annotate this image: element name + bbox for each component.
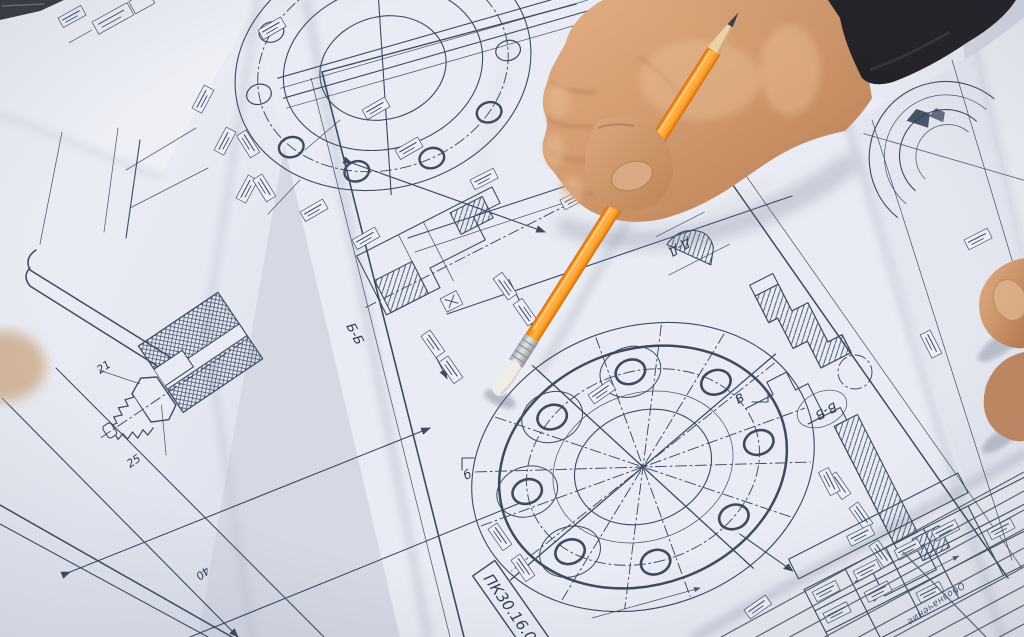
vignette-overlay <box>0 0 1024 637</box>
photo-of-blueprints: 21 25 40 <box>0 0 1024 637</box>
